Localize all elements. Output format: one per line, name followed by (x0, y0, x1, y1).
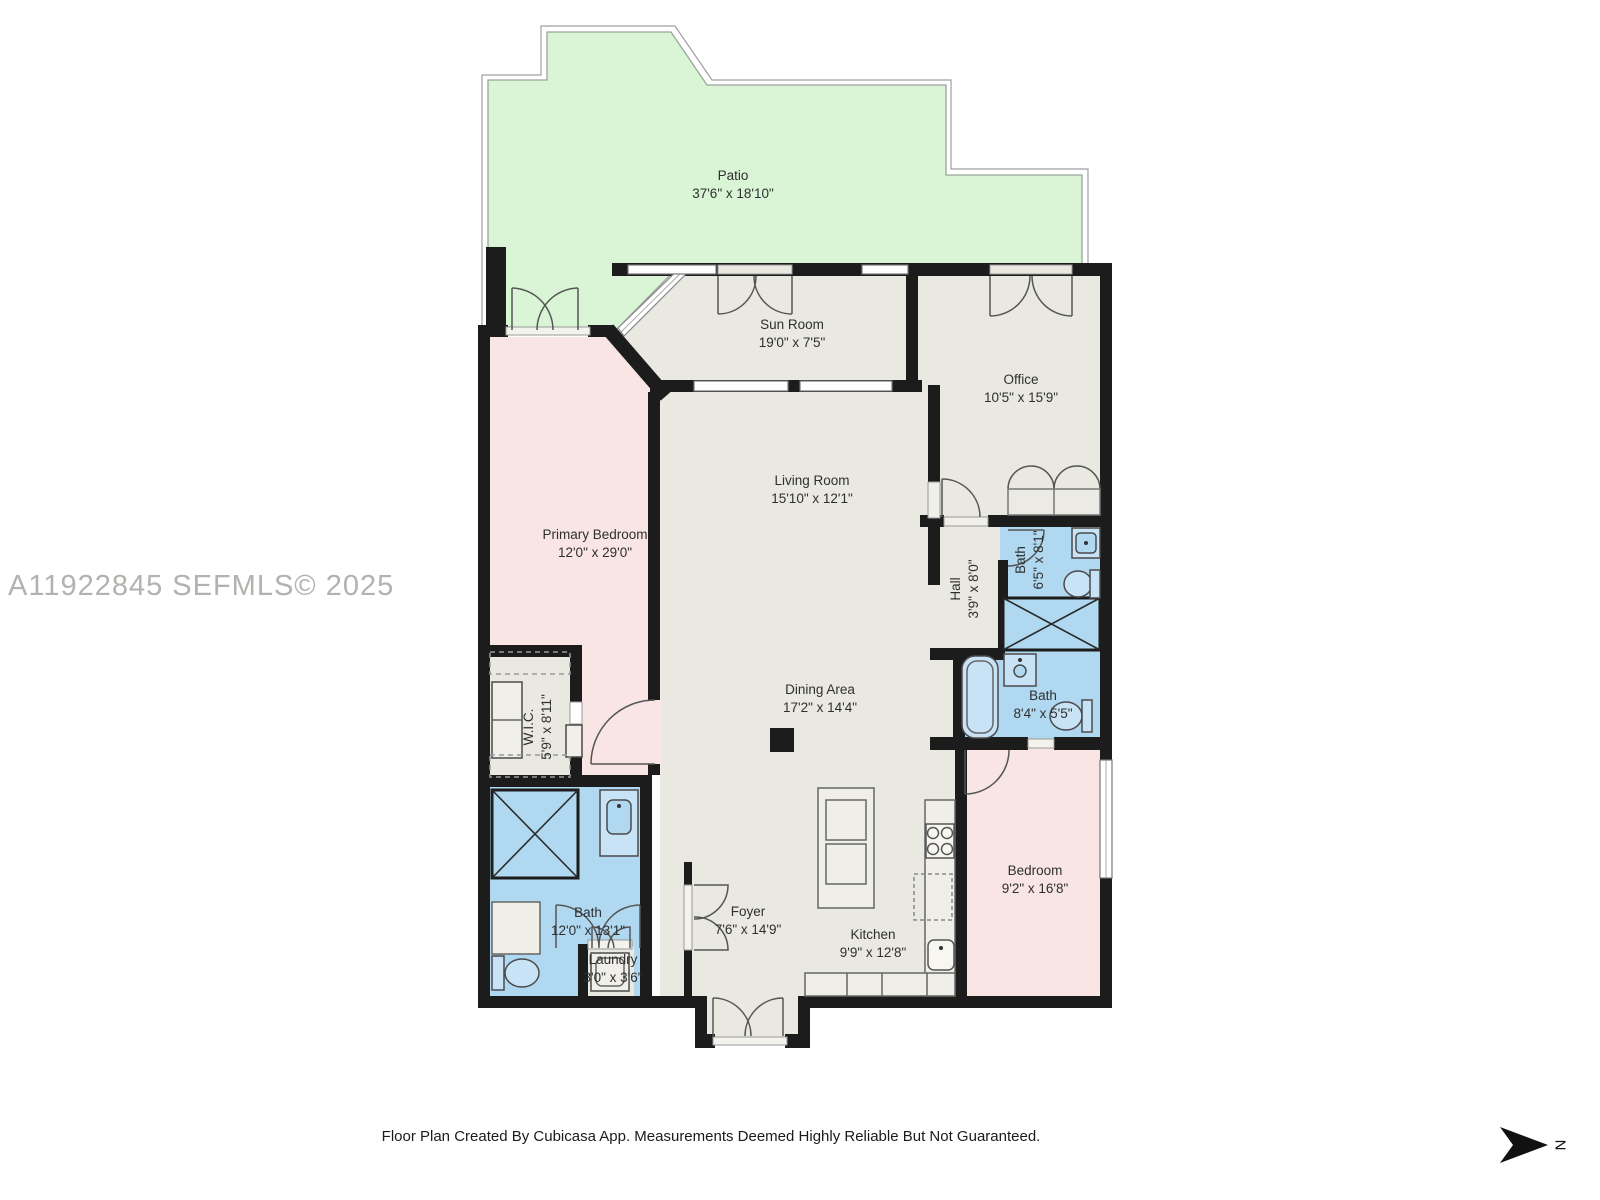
room-label-bath-hall: Bath 6'5" x 8'1" (1012, 530, 1048, 589)
room-label-hall: Hall 3'9" x 8'0" (947, 559, 983, 618)
room-label-laundry: Laundry 3'0" x 3'6" (583, 951, 642, 987)
room-label-dining-area: Dining Area 17'2" x 14'4" (783, 681, 857, 717)
room-label-living-room: Living Room 15'10" x 12'1" (771, 472, 853, 508)
room-label-foyer: Foyer 7'6" x 14'9" (715, 903, 782, 939)
floorplan-page: N Patio 37'6" x 18'10" Sun Room 19'0" x … (0, 0, 1600, 1200)
room-label-office: Office 10'5" x 15'9" (984, 371, 1058, 407)
north-arrow: N (1500, 1127, 1569, 1163)
room-label-wic: W.I.C. 5'9" x 8'11" (520, 694, 556, 760)
room-label-kitchen: Kitchen 9'9" x 12'8" (840, 926, 907, 962)
room-label-bath-primary: Bath 12'0" x 13'1" (551, 904, 625, 940)
room-label-bath-middle: Bath 8'4" x 5'5" (1013, 687, 1072, 723)
room-label-primary-bedroom: Primary Bedroom 12'0" x 29'0" (542, 526, 647, 562)
room-label-sun-room: Sun Room 19'0" x 7'5" (759, 316, 826, 352)
room-label-patio: Patio 37'6" x 18'10" (692, 167, 774, 203)
north-label: N (1552, 1140, 1569, 1151)
mls-watermark: A11922845 SEFMLS© 2025 (8, 570, 394, 603)
disclaimer-text: Floor Plan Created By Cubicasa App. Meas… (382, 1128, 1041, 1145)
room-label-bedroom: Bedroom 9'2" x 16'8" (1002, 862, 1069, 898)
